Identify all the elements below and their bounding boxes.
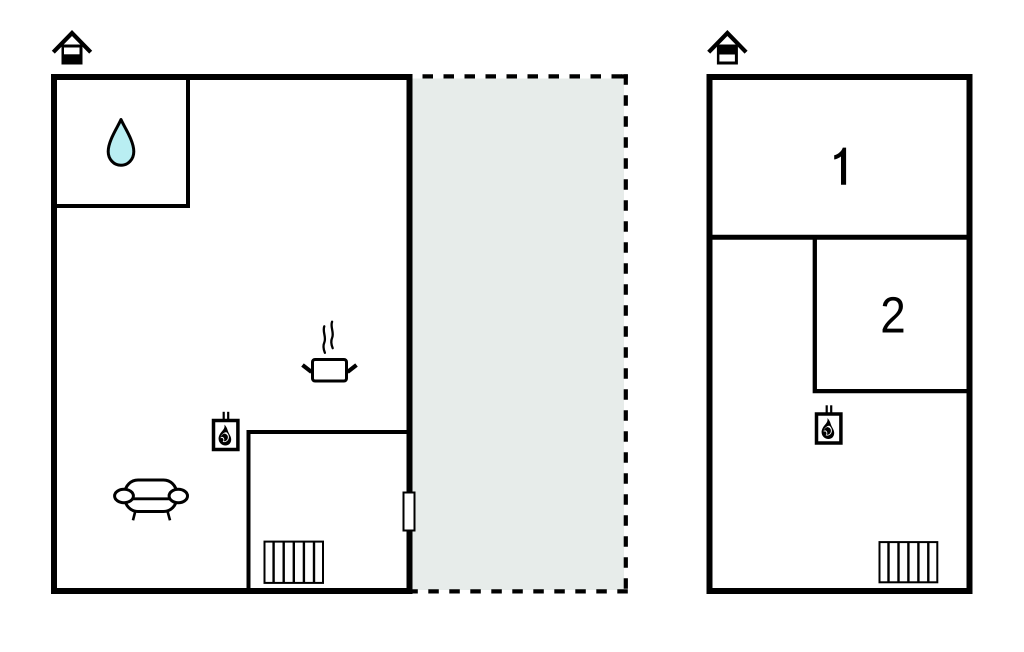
svg-text:2: 2 [880,287,906,344]
